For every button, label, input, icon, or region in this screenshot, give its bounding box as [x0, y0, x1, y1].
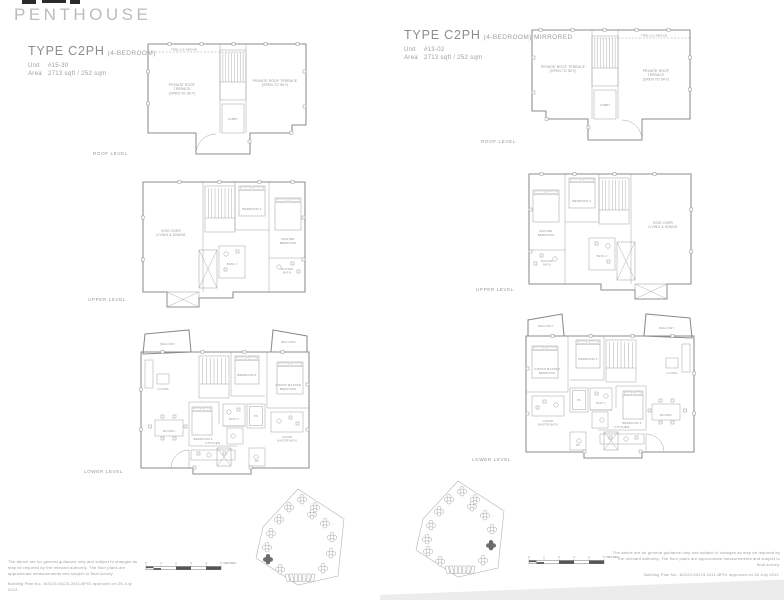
disclaimer-text: The above are for general guidance only …: [8, 559, 140, 578]
scan-artifact: [70, 0, 80, 4]
svg-text:0: 0: [145, 561, 147, 565]
svg-text:4: 4: [588, 555, 590, 559]
svg-text:5: 5: [220, 561, 222, 565]
svg-text:JUNIORMASTER BATH: JUNIORMASTER BATH: [538, 420, 558, 426]
disclaimer-right: The above are for general guidance only …: [612, 550, 780, 578]
svg-text:2: 2: [558, 555, 560, 559]
level-label-upper-left: UPPER LEVEL: [88, 297, 126, 302]
svg-text:BEDROOM 2: BEDROOM 2: [237, 373, 256, 377]
scale-bar-svg: 012345METRES: [144, 560, 244, 573]
scale-bar-left: 012345METRES: [144, 560, 244, 573]
unit-header-left: TYPE C2PH(4-BEDROOM) Unit#15-30 Area2713…: [28, 42, 156, 77]
unit-number-row: Unit#15-30: [28, 63, 156, 69]
svg-text:METRES: METRES: [224, 561, 237, 565]
area-label: Area: [404, 55, 424, 61]
building-plan-note: Building Plan No.: A0123-00123-2011-BP01…: [612, 572, 780, 578]
svg-text:TRELLIS ABOVE: TRELLIS ABOVE: [641, 34, 667, 38]
roof-floorplan-svg: TRELLIS ABOVEPRIVATE ROOFTERRACE(OPEN TO…: [528, 16, 698, 148]
svg-text:MASTERBATH: MASTERBATH: [281, 267, 293, 275]
svg-text:BEDROOM 4: BEDROOM 4: [572, 199, 591, 203]
page-title: PENTHOUSE: [14, 5, 151, 25]
disclaimer-left: The above are for general guidance only …: [8, 559, 140, 593]
svg-text:WC: WC: [576, 444, 581, 447]
svg-text:4: 4: [205, 561, 207, 565]
svg-text:KITCHEN: KITCHEN: [206, 441, 221, 445]
level-label-roof-left: ROOF LEVEL: [93, 151, 128, 156]
area-value: 2713 sqft / 252 sqm: [48, 71, 106, 77]
svg-text:0: 0: [528, 555, 530, 559]
site-plan-svg: [406, 478, 506, 582]
lower-floorplan-svg: BALCONYBALCONYLIVINGDININGBEDROOM 2JUNIO…: [131, 328, 316, 486]
area-label: Area: [28, 71, 48, 77]
svg-text:JUNIOR MASTERBEDROOM: JUNIOR MASTERBEDROOM: [275, 383, 301, 391]
level-label-roof-right: ROOF LEVEL: [481, 139, 516, 144]
svg-text:BATH 4: BATH 4: [227, 262, 238, 266]
svg-text:1: 1: [160, 561, 162, 565]
floorplan-roof-right: TRELLIS ABOVEPRIVATE ROOFTERRACE(OPEN TO…: [528, 16, 698, 148]
svg-text:HS: HS: [577, 399, 581, 402]
site-key-plan-left: [246, 486, 346, 590]
unit-area-row: Area2713 sqft / 252 sqm: [28, 71, 156, 77]
svg-text:1: 1: [543, 555, 545, 559]
svg-text:JUNIORMASTER BATH: JUNIORMASTER BATH: [277, 436, 297, 442]
site-key-plan-right: [406, 478, 506, 582]
svg-text:BATH 4: BATH 4: [597, 254, 608, 258]
svg-text:DINING: DINING: [163, 429, 175, 433]
svg-text:BATH 2: BATH 2: [229, 418, 239, 421]
svg-text:BEDROOM 4: BEDROOM 4: [242, 207, 261, 211]
svg-text:LIVING: LIVING: [666, 371, 678, 375]
disclaimer-text: The above are for general guidance only …: [612, 550, 780, 569]
svg-text:TRELLIS ABOVE: TRELLIS ABOVE: [171, 48, 197, 52]
brochure-page: PENTHOUSE TYPE C2PH(4-BEDROOM) Unit#15-3…: [0, 0, 784, 600]
site-plan-svg: [246, 486, 346, 590]
svg-text:KITCHEN: KITCHEN: [615, 425, 630, 429]
unit-label: Unit: [404, 47, 424, 53]
unit-number: #13-02: [424, 47, 444, 53]
svg-text:MASTERBEDROOM: MASTERBEDROOM: [538, 229, 555, 237]
svg-text:BALCONY: BALCONY: [538, 324, 553, 328]
svg-text:BALCONY: BALCONY: [281, 340, 296, 344]
area-value: 2713 sqft / 252 sqm: [424, 55, 482, 61]
level-label-upper-right: UPPER LEVEL: [476, 287, 514, 292]
svg-text:BEDROOM 2: BEDROOM 2: [578, 357, 597, 361]
upper-floorplan-svg: VOID OVERLIVING & DININGBEDROOM 4MASTERB…: [133, 166, 313, 308]
svg-text:JUNIOR MASTERBEDROOM: JUNIOR MASTERBEDROOM: [534, 367, 560, 375]
unit-type-name: TYPE C2PH: [28, 44, 105, 58]
svg-text:HS: HS: [254, 415, 258, 418]
svg-text:PRIVATE ROOFTERRACE(OPEN TO SK: PRIVATE ROOFTERRACE(OPEN TO SKY): [169, 83, 196, 95]
lower-floorplan-svg: BALCONYBALCONYLIVINGDININGBEDROOM 2JUNIO…: [519, 312, 704, 470]
level-label-lower-left: LOWER LEVEL: [84, 469, 123, 474]
floorplan-upper-left: VOID OVERLIVING & DININGBEDROOM 4MASTERB…: [133, 166, 313, 308]
svg-text:LIVING: LIVING: [157, 387, 169, 391]
svg-text:PRIVATE ROOFTERRACE(OPEN TO SK: PRIVATE ROOFTERRACE(OPEN TO SKY): [643, 69, 670, 81]
svg-text:3: 3: [190, 561, 192, 565]
unit-number: #15-30: [48, 63, 68, 69]
floorplan-lower-right: BALCONYBALCONYLIVINGDININGBEDROOM 2JUNIO…: [519, 312, 704, 470]
svg-text:DINING: DINING: [660, 413, 672, 417]
level-label-lower-right: LOWER LEVEL: [472, 457, 511, 462]
scan-artifact: [42, 0, 66, 3]
svg-text:PRIVATE ROOF TERRACE(OPEN TO S: PRIVATE ROOF TERRACE(OPEN TO SKY): [541, 65, 585, 73]
roof-floorplan-svg: TRELLIS ABOVEPRIVATE ROOFTERRACE(OPEN TO…: [140, 30, 310, 162]
svg-text:5: 5: [603, 555, 605, 559]
svg-text:VOID OVERLIVING & DINING: VOID OVERLIVING & DINING: [156, 229, 186, 237]
unit-type-name: TYPE C2PH: [404, 28, 481, 42]
upper-floorplan-svg: VOID OVERLIVING & DININGBEDROOM 4MASTERB…: [521, 158, 701, 300]
svg-text:LOBBY: LOBBY: [228, 117, 239, 121]
floorplan-upper-right: VOID OVERLIVING & DININGBEDROOM 4MASTERB…: [521, 158, 701, 300]
svg-text:BATH 2: BATH 2: [596, 402, 606, 405]
unit-label: Unit: [28, 63, 48, 69]
svg-text:3: 3: [573, 555, 575, 559]
svg-text:BALCONY: BALCONY: [160, 342, 175, 346]
svg-text:PRIVATE ROOF TERRACE(OPEN TO S: PRIVATE ROOF TERRACE(OPEN TO SKY): [253, 79, 297, 87]
floorplan-lower-left: BALCONYBALCONYLIVINGDININGBEDROOM 2JUNIO…: [131, 328, 316, 486]
scan-artifact: [22, 0, 36, 4]
building-plan-note: Building Plan No.: A0123-00123-2011-BP01…: [8, 581, 140, 593]
svg-text:VOID OVERLIVING & DINING: VOID OVERLIVING & DINING: [648, 221, 678, 229]
svg-text:2: 2: [175, 561, 177, 565]
svg-text:MASTERBEDROOM: MASTERBEDROOM: [280, 237, 297, 245]
svg-text:WC: WC: [255, 460, 260, 463]
svg-text:BALCONY: BALCONY: [659, 326, 674, 330]
svg-text:LOBBY: LOBBY: [600, 103, 611, 107]
svg-text:MASTERBATH: MASTERBATH: [541, 259, 553, 267]
floorplan-roof-left: TRELLIS ABOVEPRIVATE ROOFTERRACE(OPEN TO…: [140, 30, 310, 162]
